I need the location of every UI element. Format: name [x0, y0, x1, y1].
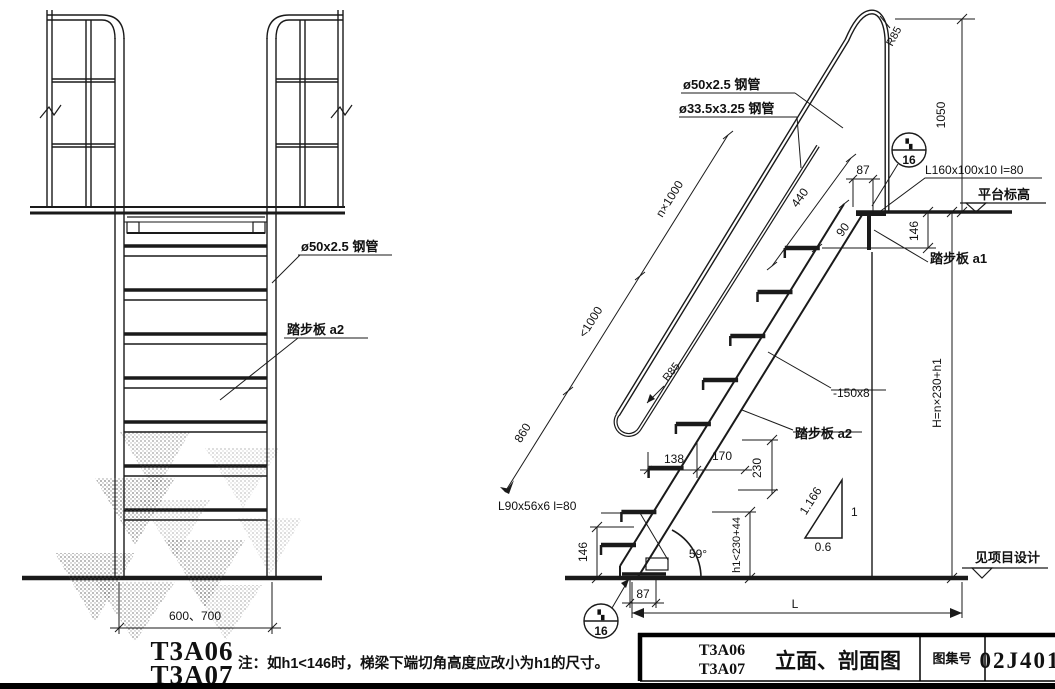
label-tread-a1: 踏步板 a1: [930, 251, 987, 266]
atlas-number: 02J401: [980, 648, 1055, 673]
dim-angle: 59°: [689, 547, 707, 561]
dim-87-bottom: 87: [636, 587, 650, 601]
drawing-sheet: ø50x2.5 钢管 踏步板 a2 600、700 T3A06 T3A07: [0, 0, 1055, 689]
atlas-label: 图集号: [932, 651, 971, 666]
detail-page-1: 16: [902, 153, 916, 167]
label-angle-top: L160x100x10 l=80: [925, 163, 1024, 177]
dim-h1: h1<230+44: [731, 517, 743, 573]
design-level-symbol: [962, 568, 1048, 578]
slope-rise: 1: [851, 505, 858, 519]
label-pipe-50: ø50x2.5 钢管: [683, 77, 760, 92]
label-angle-bottom: L90x56x6 l=80: [498, 499, 577, 513]
title-block-texts: T3A06 T3A07 立面、剖面图 图集号 02J401: [699, 642, 1055, 678]
scan-edge: [0, 683, 1055, 689]
detail-bubble-top: [872, 133, 926, 206]
detail-top-glyph-1: ▚: [905, 138, 914, 150]
dim-1050: 1050: [934, 101, 948, 128]
dim-L: L: [792, 597, 799, 611]
dim-860: 860: [511, 420, 534, 445]
slope-run: 0.6: [815, 540, 832, 554]
dim-146-bottom: 146: [576, 542, 590, 562]
label-platform-level: 平台标高: [978, 187, 1030, 202]
dim-138: 138: [664, 452, 684, 466]
label-flat-bar: -150x8: [833, 386, 870, 400]
sheet-title: 立面、剖面图: [775, 649, 901, 673]
section-treads: [601, 248, 820, 555]
dim-width-text: 600、700: [169, 609, 221, 623]
note-text: 注：如h1<146时，梯梁下端切角高度应改小为h1的尺寸。: [238, 654, 609, 672]
label-tread-front: 踏步板 a2: [287, 322, 344, 337]
dim-87-top: 87: [856, 163, 870, 177]
dim-146-top: 146: [907, 221, 921, 241]
dim-138-170-lines: [640, 442, 752, 478]
dim-lt1000: <1000: [576, 304, 606, 340]
dim-H: H=n×230+h1: [930, 358, 944, 428]
label-pipe-33: ø33.5x3.25 钢管: [679, 101, 774, 116]
label-pipe-front: ø50x2.5 钢管: [301, 239, 378, 254]
dim-230: 230: [750, 458, 764, 478]
dim-170: 170: [712, 449, 732, 463]
dim-440-lines: [767, 154, 856, 270]
label-design-level: 见项目设计: [975, 550, 1040, 565]
platform: [856, 212, 1012, 250]
dim-n1000: n×1000: [653, 178, 686, 220]
detail-top-glyph-2: ▚: [597, 609, 606, 621]
dim-87-top-lines: [846, 175, 880, 212]
detail-page-2: 16: [594, 624, 608, 638]
label-tread-a2: 踏步板 a2: [795, 426, 852, 441]
title-block-model-1: T3A06: [699, 642, 745, 659]
title-block-model-2: T3A07: [699, 661, 745, 678]
